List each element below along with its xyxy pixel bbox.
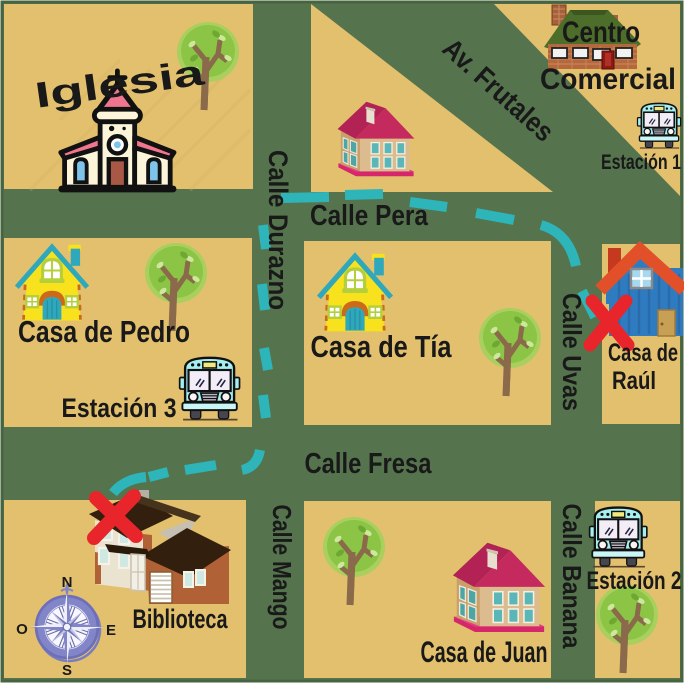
svg-text:Calle Durazno: Calle Durazno <box>263 150 293 310</box>
svg-text:Casa de: Casa de <box>608 339 678 367</box>
svg-text:E: E <box>106 622 116 639</box>
svg-text:Calle Banana: Calle Banana <box>557 504 587 649</box>
svg-text:Casa de Pedro: Casa de Pedro <box>18 314 190 349</box>
svg-text:Calle Mango: Calle Mango <box>267 505 297 630</box>
svg-text:Casa de Juan: Casa de Juan <box>421 636 548 669</box>
svg-text:Estación 1: Estación 1 <box>601 151 681 174</box>
svg-text:Biblioteca: Biblioteca <box>133 604 229 634</box>
svg-text:Calle Pera: Calle Pera <box>310 200 429 232</box>
svg-text:N: N <box>62 574 73 591</box>
svg-text:Estación 3: Estación 3 <box>62 393 177 423</box>
svg-text:S: S <box>62 662 72 679</box>
svg-text:Centro: Centro <box>562 16 640 49</box>
svg-text:Calle Uvas: Calle Uvas <box>557 293 587 411</box>
svg-text:Estación 2: Estación 2 <box>587 567 682 595</box>
svg-text:Calle Fresa: Calle Fresa <box>305 448 433 480</box>
svg-text:Raúl: Raúl <box>612 367 656 395</box>
svg-text:O: O <box>16 621 28 638</box>
svg-text:Casa de Tía: Casa de Tía <box>311 329 453 364</box>
svg-text:Comercial: Comercial <box>540 63 676 96</box>
